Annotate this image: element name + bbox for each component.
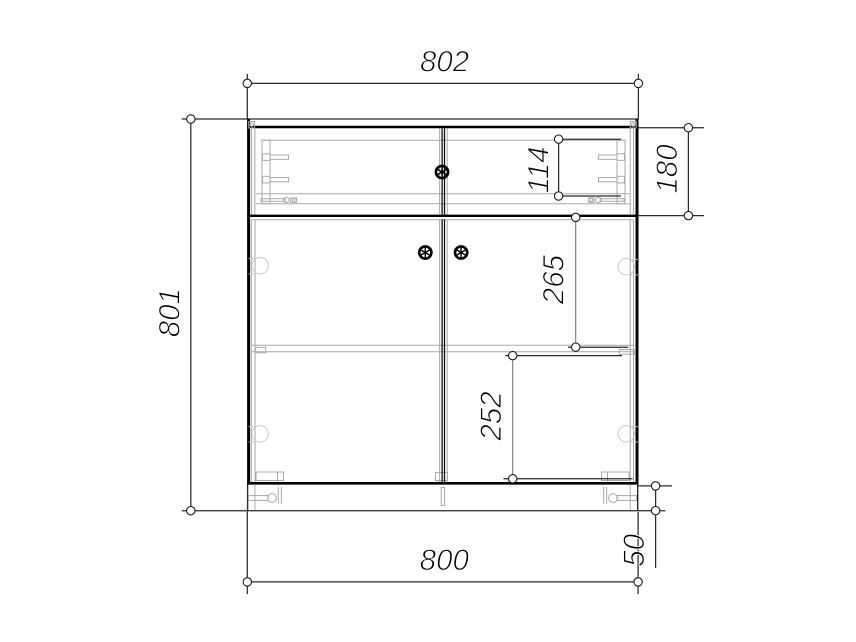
- svg-text:802: 802: [420, 46, 469, 79]
- svg-text:265: 265: [538, 254, 571, 305]
- svg-text:800: 800: [420, 544, 470, 577]
- svg-text:252: 252: [475, 391, 508, 441]
- svg-text:50: 50: [618, 533, 651, 566]
- svg-text:801: 801: [154, 288, 187, 337]
- svg-text:180: 180: [651, 144, 684, 194]
- svg-text:114: 114: [523, 146, 556, 193]
